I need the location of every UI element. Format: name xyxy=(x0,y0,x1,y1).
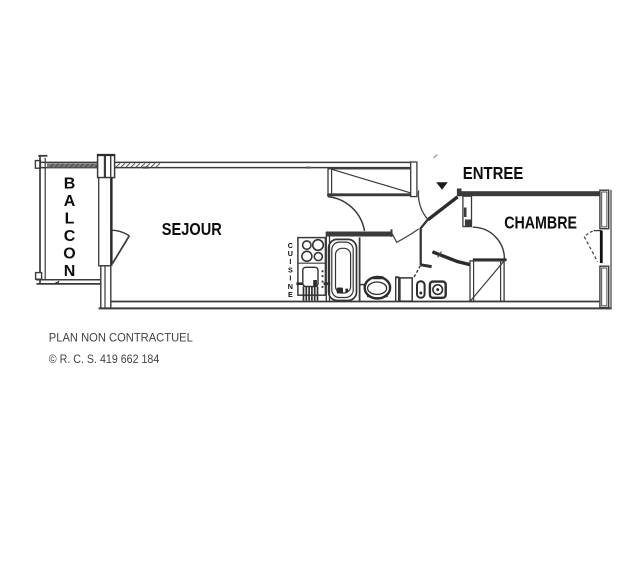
svg-text:O: O xyxy=(63,246,75,263)
svg-text:C: C xyxy=(64,228,76,245)
svg-text:© R. C. S. 419 662 184: © R. C. S. 419 662 184 xyxy=(49,352,160,366)
svg-text:E: E xyxy=(288,290,293,299)
svg-text:N: N xyxy=(64,263,76,280)
svg-text:A: A xyxy=(64,193,76,210)
svg-text:CHAMBRE: CHAMBRE xyxy=(504,213,577,233)
svg-text:B: B xyxy=(64,176,76,193)
svg-text:ENTREE: ENTREE xyxy=(463,163,524,183)
svg-text:PLAN NON CONTRACTUEL: PLAN NON CONTRACTUEL xyxy=(49,331,193,345)
svg-text:L: L xyxy=(65,211,75,228)
svg-text:SEJOUR: SEJOUR xyxy=(162,219,222,239)
